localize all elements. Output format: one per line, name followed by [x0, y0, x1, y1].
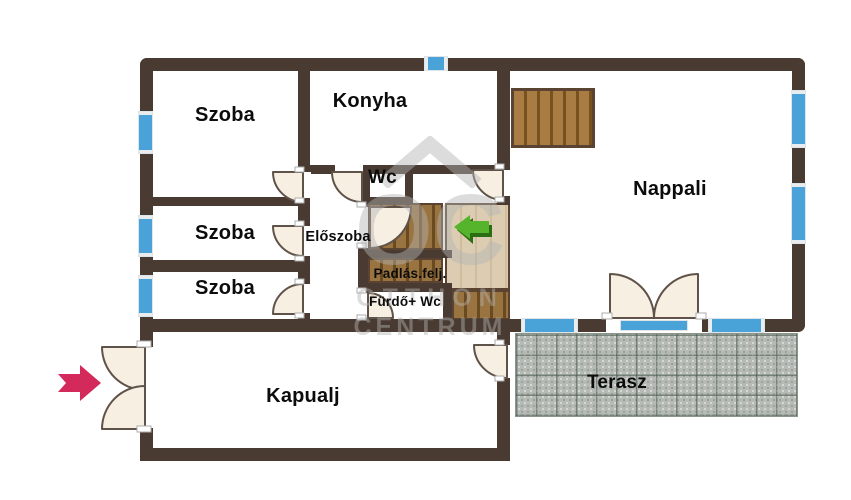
room-label-padlas-feljaro: Padlás.felj. [362, 267, 458, 282]
entry-double-door-top-leaf [102, 347, 145, 390]
watermark-name-line2: CENTRUM [330, 313, 530, 342]
window [138, 275, 153, 317]
window [791, 183, 806, 244]
room-label-szoba-1: Szoba [155, 104, 295, 126]
entry-double-door-bottom-leaf [102, 386, 145, 429]
door-opening [497, 345, 510, 378]
room-label-terasz: Terasz [547, 373, 687, 394]
window [138, 111, 153, 154]
wall-segment [140, 448, 510, 461]
door-opening [297, 284, 311, 313]
window [791, 90, 806, 148]
french-door-left-leaf [610, 274, 654, 318]
room-label-nappali: Nappali [600, 178, 740, 200]
wall-segment [497, 378, 510, 461]
room-label-szoba-3: Szoba [155, 277, 295, 299]
floor-plan-canvas: OC OTTHON CENTRUM Szoba Szoba Szoba Kony… [0, 0, 851, 500]
window [138, 215, 153, 257]
french-door-sill [620, 320, 688, 331]
wall-segment [146, 260, 310, 272]
room-label-eloszoba: Előszoba [299, 230, 377, 246]
window [424, 56, 448, 71]
room-label-szoba-2: Szoba [155, 222, 295, 244]
french-door-right-leaf [654, 274, 698, 318]
wall-segment [140, 58, 805, 71]
door-opening [140, 347, 153, 428]
room-label-furdo-wc: Fürdő+ Wc [357, 295, 453, 310]
room-label-wc: Wc [355, 168, 410, 189]
wall-segment [146, 197, 310, 206]
door-opening [297, 172, 311, 198]
red-arrow-right-icon [58, 365, 101, 401]
room-label-konyha: Konyha [300, 90, 440, 112]
room-label-kapualj: Kapualj [233, 385, 373, 407]
window [708, 318, 765, 333]
